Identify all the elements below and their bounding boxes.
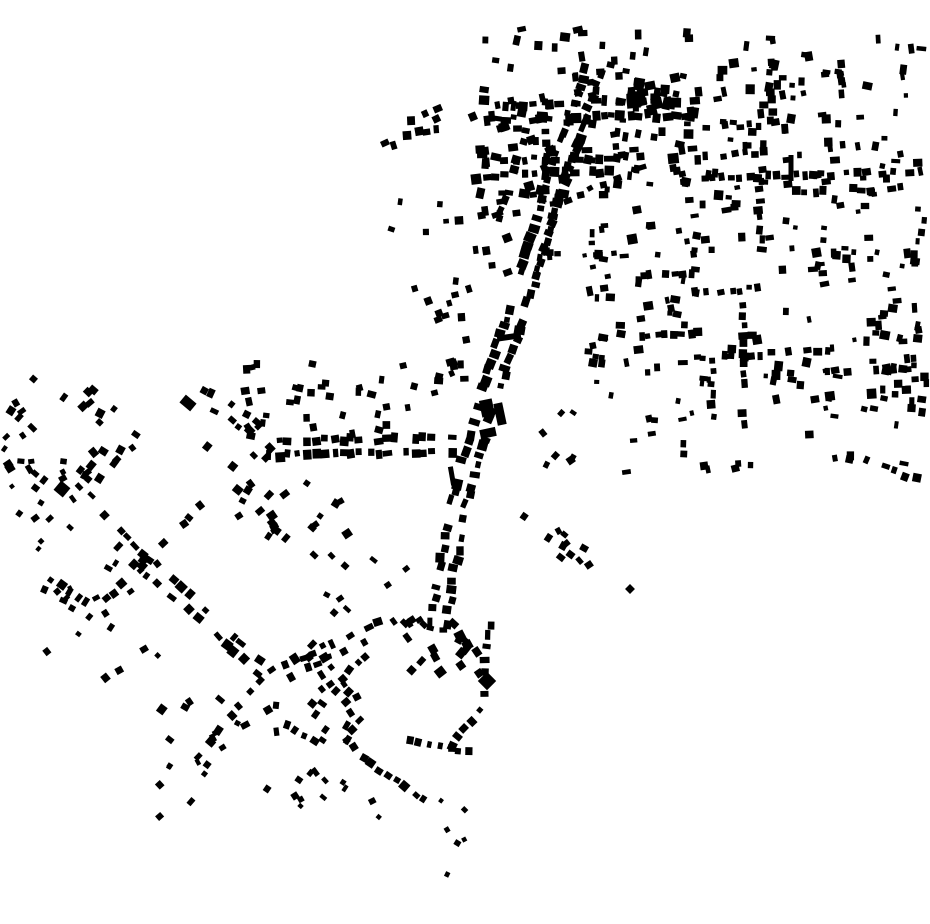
building — [344, 664, 355, 675]
building — [768, 349, 776, 356]
building — [466, 716, 477, 727]
building — [319, 794, 327, 802]
building — [494, 101, 500, 109]
building — [460, 498, 468, 508]
building — [690, 213, 699, 218]
building — [554, 251, 561, 256]
building — [625, 584, 635, 594]
building — [891, 159, 900, 164]
building — [811, 247, 822, 258]
building — [770, 118, 780, 126]
building — [307, 639, 317, 649]
building — [743, 41, 749, 51]
building — [437, 201, 443, 207]
building — [694, 87, 702, 97]
building — [730, 288, 736, 295]
building — [688, 145, 698, 152]
building — [337, 674, 348, 685]
building — [669, 73, 680, 84]
building — [894, 421, 899, 429]
building — [648, 431, 657, 437]
building — [321, 776, 329, 784]
building — [309, 550, 318, 559]
building — [448, 448, 457, 458]
building — [458, 534, 464, 542]
building — [275, 452, 285, 463]
building — [243, 365, 250, 374]
building — [87, 491, 96, 499]
building — [613, 143, 620, 150]
building — [547, 252, 553, 260]
building — [307, 389, 315, 397]
building — [263, 784, 272, 793]
building — [654, 363, 660, 371]
building — [534, 41, 543, 50]
building — [599, 191, 608, 198]
building — [672, 90, 679, 97]
building — [872, 330, 879, 336]
building — [660, 84, 670, 94]
building — [448, 370, 455, 378]
building — [679, 73, 687, 80]
building — [739, 339, 747, 347]
building — [779, 75, 787, 80]
building — [214, 631, 224, 641]
building — [748, 332, 757, 339]
building — [757, 246, 767, 253]
building — [529, 101, 537, 107]
building — [402, 131, 411, 140]
building — [588, 358, 598, 368]
building — [444, 826, 451, 833]
building — [774, 80, 781, 89]
building — [742, 322, 748, 328]
building — [833, 374, 843, 380]
building — [360, 638, 369, 647]
building — [99, 510, 110, 521]
building — [684, 129, 694, 139]
building — [416, 656, 426, 666]
building — [845, 455, 854, 464]
building — [255, 506, 266, 516]
building — [832, 455, 838, 462]
building — [851, 249, 856, 255]
building — [165, 735, 175, 744]
building — [670, 111, 681, 120]
building — [899, 461, 909, 467]
building — [368, 449, 374, 456]
building — [830, 344, 835, 351]
building — [758, 166, 767, 174]
building — [586, 185, 593, 192]
building — [473, 246, 479, 255]
building — [238, 653, 250, 665]
building — [153, 559, 162, 568]
building — [728, 175, 735, 180]
building — [690, 97, 701, 105]
map-stage — [0, 0, 930, 924]
building — [820, 237, 826, 243]
building — [414, 738, 423, 747]
building — [563, 119, 573, 125]
building — [201, 770, 208, 777]
building — [327, 663, 335, 671]
building — [390, 141, 398, 151]
building — [504, 353, 515, 365]
building — [731, 200, 740, 207]
building — [599, 42, 605, 50]
building — [346, 631, 356, 640]
building — [458, 514, 466, 523]
building — [918, 229, 926, 237]
building — [604, 274, 611, 280]
building — [513, 125, 522, 131]
building — [313, 660, 323, 668]
building — [592, 111, 601, 121]
building — [283, 720, 291, 730]
building — [521, 127, 530, 134]
building — [19, 431, 27, 439]
building — [806, 316, 811, 323]
building — [599, 226, 605, 233]
building — [488, 262, 495, 269]
building — [42, 647, 51, 656]
building — [380, 139, 390, 148]
building — [861, 406, 868, 413]
building — [753, 206, 763, 215]
building — [584, 348, 592, 354]
building — [470, 173, 481, 185]
building — [920, 373, 928, 381]
building — [301, 732, 308, 740]
building — [836, 202, 845, 209]
building — [488, 622, 495, 630]
building — [601, 95, 607, 106]
building — [512, 209, 521, 216]
building — [600, 284, 609, 292]
building — [869, 359, 876, 364]
building — [632, 205, 642, 214]
building — [897, 150, 904, 158]
building — [327, 552, 335, 560]
building — [355, 658, 363, 666]
building — [482, 36, 488, 43]
building — [421, 109, 430, 118]
building — [281, 660, 290, 670]
building — [680, 440, 686, 448]
building — [579, 62, 589, 74]
building — [110, 405, 118, 413]
building — [443, 219, 449, 224]
building — [100, 672, 111, 683]
building — [687, 107, 695, 116]
building — [873, 366, 879, 375]
building — [374, 410, 381, 418]
building — [234, 720, 241, 727]
building — [254, 654, 266, 666]
building — [115, 577, 127, 589]
building — [551, 451, 560, 461]
building — [797, 152, 802, 159]
building — [630, 438, 638, 443]
building — [882, 271, 890, 278]
building — [155, 812, 164, 821]
building — [383, 421, 391, 429]
building — [179, 395, 196, 412]
building — [823, 405, 828, 411]
building — [113, 541, 123, 552]
building — [703, 288, 709, 296]
building — [782, 217, 789, 224]
building — [290, 725, 299, 735]
building — [255, 676, 265, 686]
building — [633, 92, 641, 98]
building — [700, 201, 706, 209]
building — [352, 692, 362, 701]
building — [863, 455, 871, 464]
building — [790, 95, 795, 100]
building — [375, 450, 382, 460]
building — [754, 283, 761, 292]
building — [398, 780, 411, 793]
building — [762, 179, 768, 184]
building — [29, 374, 38, 383]
building — [565, 550, 575, 560]
building — [560, 32, 571, 42]
building — [88, 447, 99, 459]
building — [582, 253, 587, 258]
building — [481, 158, 489, 169]
building — [379, 376, 385, 384]
building — [592, 354, 599, 360]
building — [309, 736, 320, 747]
building — [881, 462, 890, 470]
building — [903, 248, 911, 258]
building — [402, 632, 412, 643]
building — [458, 360, 464, 368]
building — [677, 331, 685, 337]
building — [39, 475, 48, 485]
building — [139, 644, 149, 653]
building — [742, 149, 748, 156]
building — [277, 437, 283, 443]
building — [215, 695, 225, 705]
building — [418, 450, 427, 458]
building — [485, 630, 491, 640]
building — [913, 334, 923, 343]
building — [610, 130, 620, 137]
building — [128, 444, 136, 452]
building — [595, 294, 600, 302]
building — [531, 214, 543, 223]
building — [875, 320, 882, 330]
building — [542, 129, 550, 134]
building — [741, 420, 748, 429]
building — [480, 691, 488, 697]
building — [260, 419, 266, 427]
building — [502, 268, 512, 277]
building — [512, 35, 521, 46]
building — [584, 560, 594, 570]
building — [9, 483, 15, 489]
building — [496, 198, 504, 205]
building — [192, 612, 204, 624]
building — [399, 362, 407, 369]
building — [710, 368, 716, 374]
building — [414, 126, 424, 136]
building — [590, 264, 597, 269]
building — [900, 472, 910, 482]
building — [500, 171, 509, 177]
building — [423, 229, 429, 235]
building — [746, 285, 752, 290]
building — [830, 366, 839, 374]
building — [915, 238, 919, 244]
building — [879, 163, 885, 169]
building — [626, 233, 638, 245]
building — [720, 119, 727, 125]
building — [558, 174, 569, 184]
building — [452, 731, 463, 742]
building — [318, 384, 326, 390]
building — [510, 114, 516, 120]
building — [921, 217, 927, 224]
building — [331, 435, 340, 444]
building — [218, 744, 226, 752]
building — [210, 407, 220, 415]
building — [738, 332, 748, 340]
building — [627, 171, 632, 180]
building — [95, 418, 104, 427]
building — [474, 451, 484, 459]
building — [772, 394, 781, 404]
building — [273, 727, 279, 736]
building — [341, 528, 353, 540]
building — [309, 423, 317, 432]
building — [579, 543, 589, 552]
building — [281, 533, 291, 543]
building — [774, 361, 784, 372]
building — [195, 500, 205, 511]
building — [340, 561, 349, 570]
building — [382, 403, 390, 411]
building — [711, 413, 717, 420]
building — [691, 247, 698, 253]
building — [130, 541, 140, 551]
building — [465, 284, 473, 293]
building — [759, 102, 768, 109]
building — [446, 585, 457, 594]
building — [830, 413, 838, 418]
building — [734, 185, 740, 190]
building — [862, 81, 873, 90]
building — [40, 585, 49, 594]
building — [403, 448, 409, 456]
building — [405, 404, 411, 411]
building — [748, 128, 757, 136]
building — [645, 369, 650, 376]
building — [678, 145, 686, 155]
building — [594, 380, 599, 384]
building — [166, 592, 177, 602]
building — [706, 400, 715, 409]
building — [638, 97, 647, 105]
building — [787, 369, 795, 376]
building — [451, 291, 459, 298]
building — [74, 593, 83, 603]
building — [803, 347, 812, 354]
building — [553, 157, 560, 164]
building — [507, 344, 518, 355]
building — [857, 187, 866, 193]
building — [842, 254, 851, 263]
building — [899, 263, 904, 268]
building — [323, 591, 331, 598]
building — [848, 277, 856, 282]
building — [643, 301, 654, 311]
building — [606, 293, 616, 301]
building — [69, 494, 77, 503]
building — [764, 374, 769, 379]
building — [488, 111, 495, 122]
building — [616, 322, 625, 329]
building — [622, 132, 629, 142]
building — [441, 532, 450, 540]
building — [717, 289, 725, 296]
building — [678, 360, 688, 365]
building — [651, 417, 658, 423]
building — [227, 461, 238, 472]
building — [863, 336, 869, 346]
building — [439, 627, 447, 632]
building — [768, 108, 777, 115]
building — [538, 428, 547, 437]
building — [589, 342, 597, 350]
building — [658, 127, 665, 136]
building — [670, 331, 678, 339]
building — [59, 392, 68, 402]
building — [757, 214, 763, 221]
building — [483, 174, 492, 181]
building — [622, 469, 631, 475]
building — [721, 87, 728, 98]
building — [870, 405, 879, 412]
building — [871, 141, 879, 151]
building — [725, 195, 731, 200]
building — [843, 368, 851, 376]
building — [917, 167, 923, 177]
building — [232, 484, 244, 496]
building — [434, 665, 447, 678]
building — [785, 347, 793, 356]
building — [249, 451, 258, 460]
building — [444, 871, 450, 878]
building — [234, 423, 242, 431]
building — [482, 643, 491, 649]
building — [98, 446, 109, 457]
building — [830, 156, 840, 163]
building — [709, 358, 715, 364]
building — [794, 170, 800, 177]
building — [522, 157, 528, 165]
building — [711, 390, 716, 399]
building — [531, 154, 537, 159]
building — [308, 360, 316, 368]
building — [623, 358, 629, 367]
building — [461, 837, 467, 843]
building — [730, 120, 737, 126]
building — [751, 67, 757, 72]
